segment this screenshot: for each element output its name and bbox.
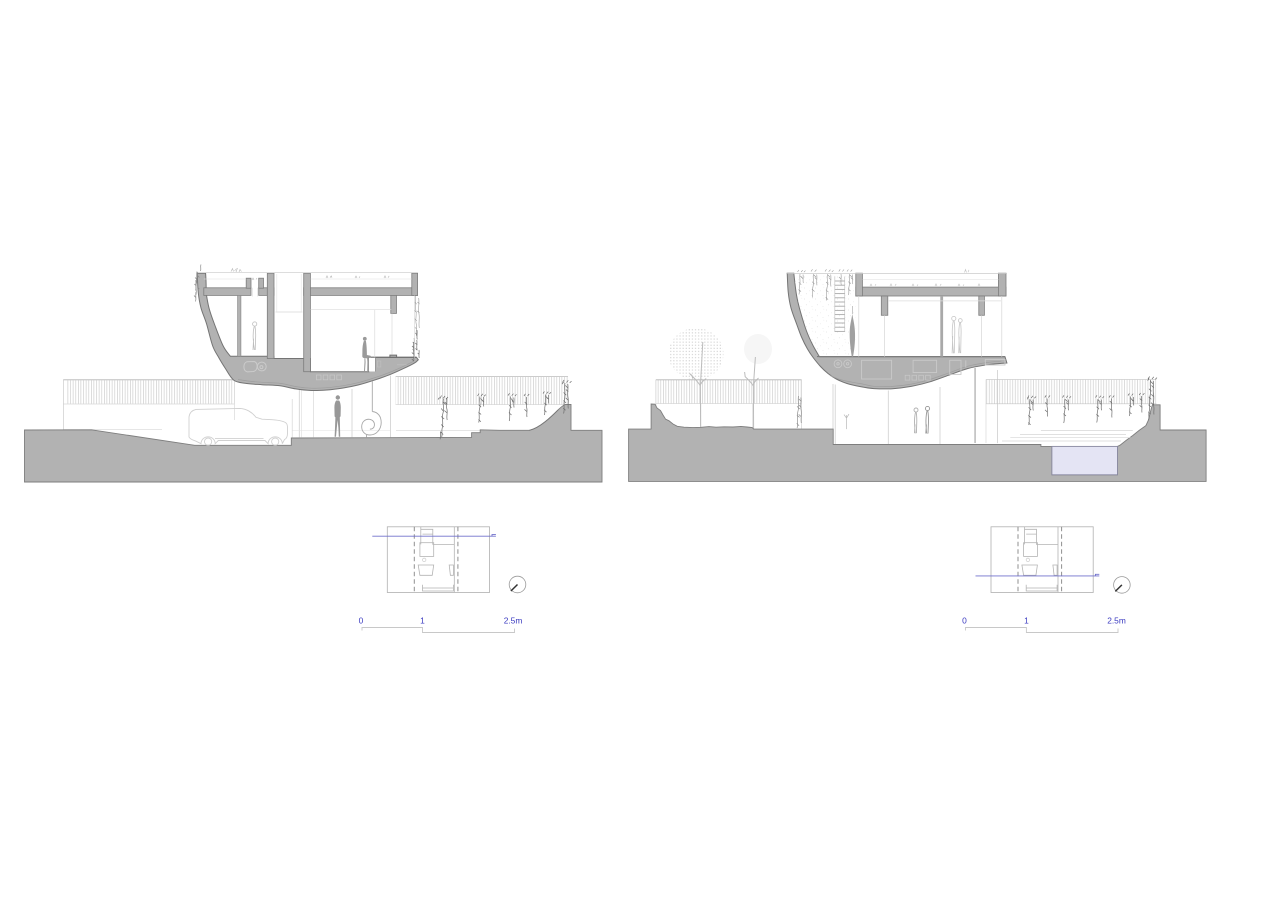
svg-text:2.5m: 2.5m bbox=[1107, 616, 1126, 626]
svg-text:2.5m: 2.5m bbox=[504, 616, 523, 626]
svg-text:1: 1 bbox=[420, 616, 425, 626]
svg-text:0: 0 bbox=[962, 616, 967, 626]
svg-text:1: 1 bbox=[1024, 616, 1029, 626]
svg-text:0: 0 bbox=[359, 616, 364, 626]
